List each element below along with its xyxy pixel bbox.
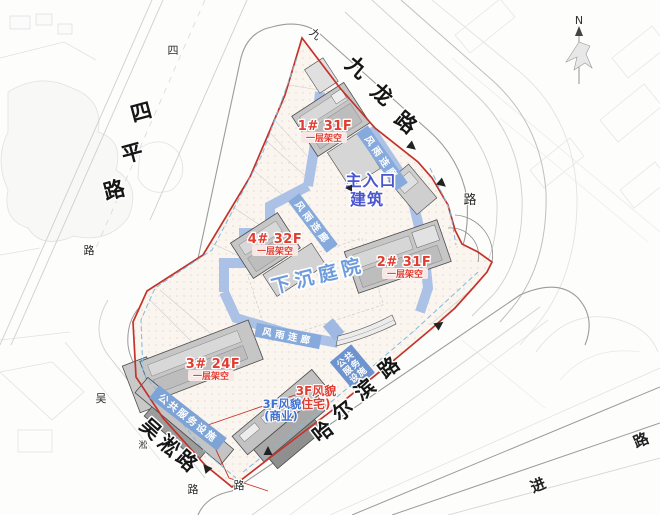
road-char-small: 路 (463, 192, 476, 208)
site-plan-map: 风雨连廊 风雨连廊 风雨连廊 公共服务设施 公共 服务 设施 1# 31F 一层… (0, 0, 660, 515)
main-entrance-line1: 主入口 (345, 171, 396, 190)
road-char-small: 路 (188, 483, 199, 496)
building-4-sub: 一层架空 (257, 245, 293, 257)
road-char-small: 淞 (138, 440, 147, 451)
heritage-residential-line1: 3F风貌 (296, 383, 337, 398)
building-1-label: 1# 31F (298, 119, 352, 134)
building-3-label: 3# 24F (186, 357, 240, 372)
site-plan-canvas: 风雨连廊 风雨连廊 风雨连廊 公共服务设施 公共 服务 设施 1# 31F 一层… (0, 0, 660, 515)
road-char-small: 四 (168, 44, 179, 57)
building-2-label: 2# 31F (377, 255, 431, 270)
road-char-small: 路 (234, 479, 245, 492)
road-char-small: 路 (84, 244, 95, 257)
road-char-small: 吴 (96, 392, 107, 405)
main-entrance-line2: 建筑 (350, 190, 384, 209)
building-3-sub: 一层架空 (193, 370, 229, 382)
building-2-sub: 一层架空 (387, 268, 423, 280)
building-4-label: 4# 32F (248, 232, 302, 247)
heritage-commercial-line2: (商业) (264, 409, 298, 423)
building-1-sub: 一层架空 (306, 132, 342, 144)
north-label: N (575, 14, 583, 27)
